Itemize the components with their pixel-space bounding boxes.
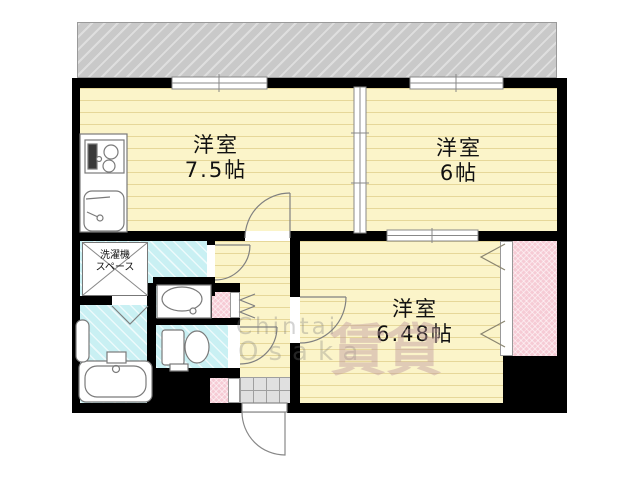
room-6-label: 洋室 6帖 [399,136,519,186]
room-6-48-label: 洋室 6.48帖 [350,297,480,347]
room-size: 7.5帖 [146,158,286,183]
kitchen-unit [80,134,127,232]
bathroom-folding-door-icon [112,306,148,324]
room-name: 洋室 [146,133,286,158]
door-arc-room-6-48 [300,297,346,343]
floorplan: 洋室 7.5帖 洋室 6帖 洋室 6.48帖 洗濯機 スペース Chintai … [0,0,640,480]
window-top-left-icon [172,74,267,92]
window-middle-icon [387,228,478,243]
door-arc-washroom [215,245,250,280]
room-size: 6.48帖 [350,322,480,347]
toilet-icon [162,330,209,371]
hall-closet-folding-door-icon [240,294,255,318]
bathtub-icon [76,320,152,402]
washbasin-icon [157,285,211,318]
room-name: 洋室 [350,297,480,322]
room-7-5-label: 洋室 7.5帖 [146,133,286,183]
kitchen-sink-icon [84,191,124,231]
entry-door-icon [242,403,287,455]
door-arc-toilet [240,327,277,364]
room-size: 6帖 [399,161,519,186]
room-name: 洋室 [399,136,519,161]
window-top-right-icon [410,74,503,92]
symbols-overlay [0,0,640,480]
bath-counter-icon [76,320,89,362]
door-arc-room-7-5 [245,193,290,238]
laundry-space-label: 洗濯機 スペース [82,250,148,274]
sliding-partition-icon [351,87,369,233]
stove-icon [85,140,124,173]
closet-folding-door-icon [481,244,505,347]
